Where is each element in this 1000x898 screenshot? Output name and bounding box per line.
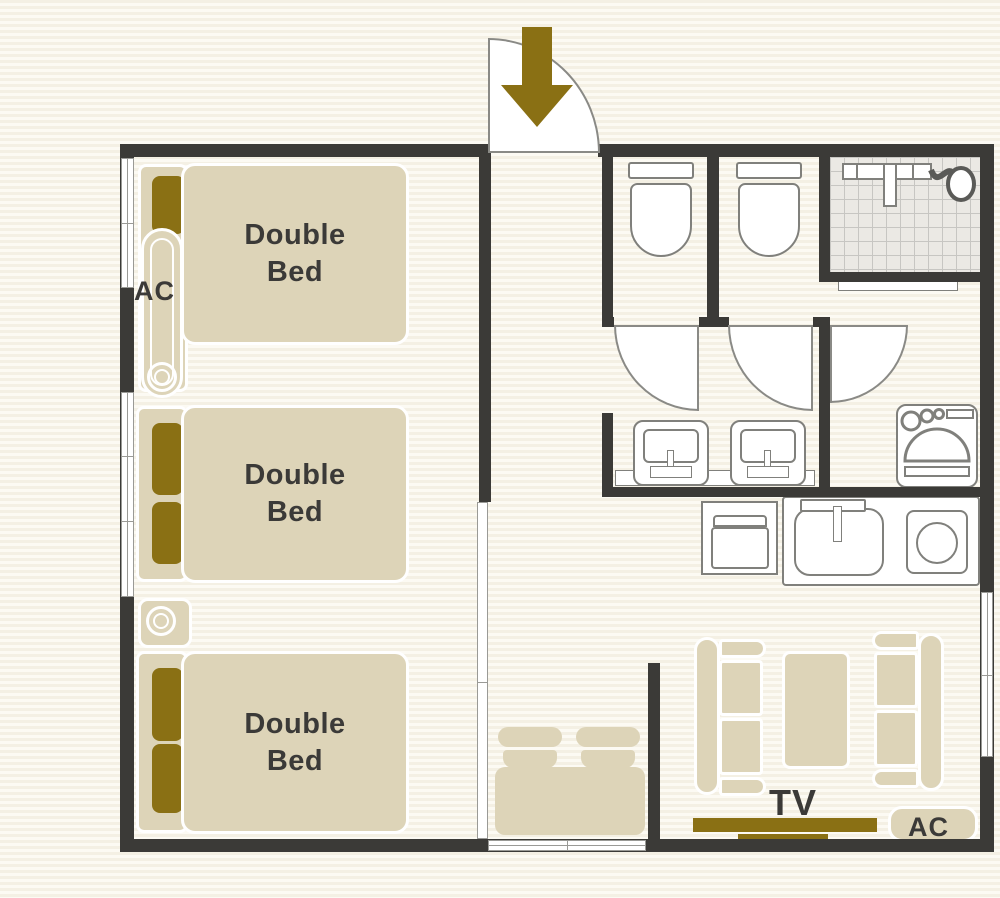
washbasin-base xyxy=(747,466,789,478)
sofa-back xyxy=(694,637,720,795)
refrigerator-body xyxy=(711,527,769,569)
window-divider xyxy=(122,521,133,522)
wall-toilet-divider xyxy=(707,157,719,327)
dining-chair-back xyxy=(498,727,562,747)
bed-label-line2: Bed xyxy=(267,494,323,531)
ac-living-label: AC xyxy=(908,812,949,843)
washroom-door-swing xyxy=(830,325,908,403)
window-divider xyxy=(122,456,133,457)
bed-label-line1: Double xyxy=(244,706,345,743)
bed-label-line1: Double xyxy=(244,457,345,494)
toilet-door-swing xyxy=(728,325,813,411)
toilet-tank xyxy=(736,162,802,179)
bed-label-line1: Double xyxy=(244,217,345,254)
bed-pillow xyxy=(152,423,183,495)
tv-stand xyxy=(693,818,877,832)
sofa-seat xyxy=(874,652,918,708)
dining-chair-seat xyxy=(503,750,557,768)
window-divider xyxy=(122,223,133,224)
sofa-armrest xyxy=(719,639,766,658)
window-divider xyxy=(567,841,568,850)
wall-washroom xyxy=(819,322,830,497)
window-mullion xyxy=(127,393,128,596)
toilet-bowl xyxy=(630,183,692,257)
refrigerator xyxy=(701,501,778,575)
double-bed-2: Double Bed xyxy=(181,405,409,583)
sofa-armrest xyxy=(872,769,919,788)
sofa-back xyxy=(918,633,944,791)
toilet-door-swing xyxy=(614,325,699,411)
window-divider xyxy=(982,675,992,676)
wall-toilet-left xyxy=(602,157,613,327)
wall-toilet-front-b xyxy=(699,317,729,327)
lamp-inner xyxy=(153,613,169,629)
toilet-bowl xyxy=(738,183,800,257)
ac-unit-base-inner xyxy=(154,369,170,385)
kitchen-faucet-stem xyxy=(833,506,842,542)
double-bed-3: Double Bed xyxy=(181,651,409,834)
sofa-seat xyxy=(874,710,918,767)
washbasin-base xyxy=(650,466,692,478)
sofa-seat xyxy=(719,718,763,775)
window xyxy=(488,840,646,851)
wall-top-left xyxy=(120,144,488,157)
washbasin xyxy=(633,420,709,486)
window xyxy=(121,158,134,288)
entrance-arrow-icon xyxy=(501,27,573,127)
dining-chair-back xyxy=(576,727,640,747)
double-bed-1: Double Bed xyxy=(181,163,409,345)
bed-label-line2: Bed xyxy=(267,254,323,291)
bed-pillow xyxy=(152,668,183,741)
wall-central xyxy=(479,144,491,502)
dining-table xyxy=(495,767,645,835)
stove-burner-ring xyxy=(916,522,958,564)
refrigerator-lid xyxy=(713,515,767,527)
wall-living-stub xyxy=(648,663,660,839)
coffee-table xyxy=(782,651,850,769)
bed-label-line2: Bed xyxy=(267,743,323,780)
wall-shower-left xyxy=(819,157,830,282)
wall-shower-bottom xyxy=(819,272,980,282)
shower-head xyxy=(835,160,980,222)
wall-top-right xyxy=(598,144,994,157)
window xyxy=(981,592,993,757)
bed-pillow xyxy=(152,744,183,813)
ac-bedroom-label: AC xyxy=(134,276,175,307)
wall-kitchen-top xyxy=(602,487,980,497)
partition-divider xyxy=(478,682,487,683)
floor-plan: AC Double Bed Double Bed Double Bed TV A… xyxy=(0,0,1000,898)
sliding-partition xyxy=(477,502,488,839)
washing-machine-detail xyxy=(896,404,978,488)
sofa-armrest xyxy=(872,631,919,650)
bed-pillow xyxy=(152,502,183,564)
dining-chair-seat xyxy=(581,750,635,768)
toilet-tank xyxy=(628,162,694,179)
wall-vanity-left xyxy=(602,413,613,497)
sofa-seat xyxy=(719,660,763,716)
window xyxy=(121,392,134,597)
washbasin xyxy=(730,420,806,486)
wall-toilet-front-a xyxy=(602,317,614,327)
